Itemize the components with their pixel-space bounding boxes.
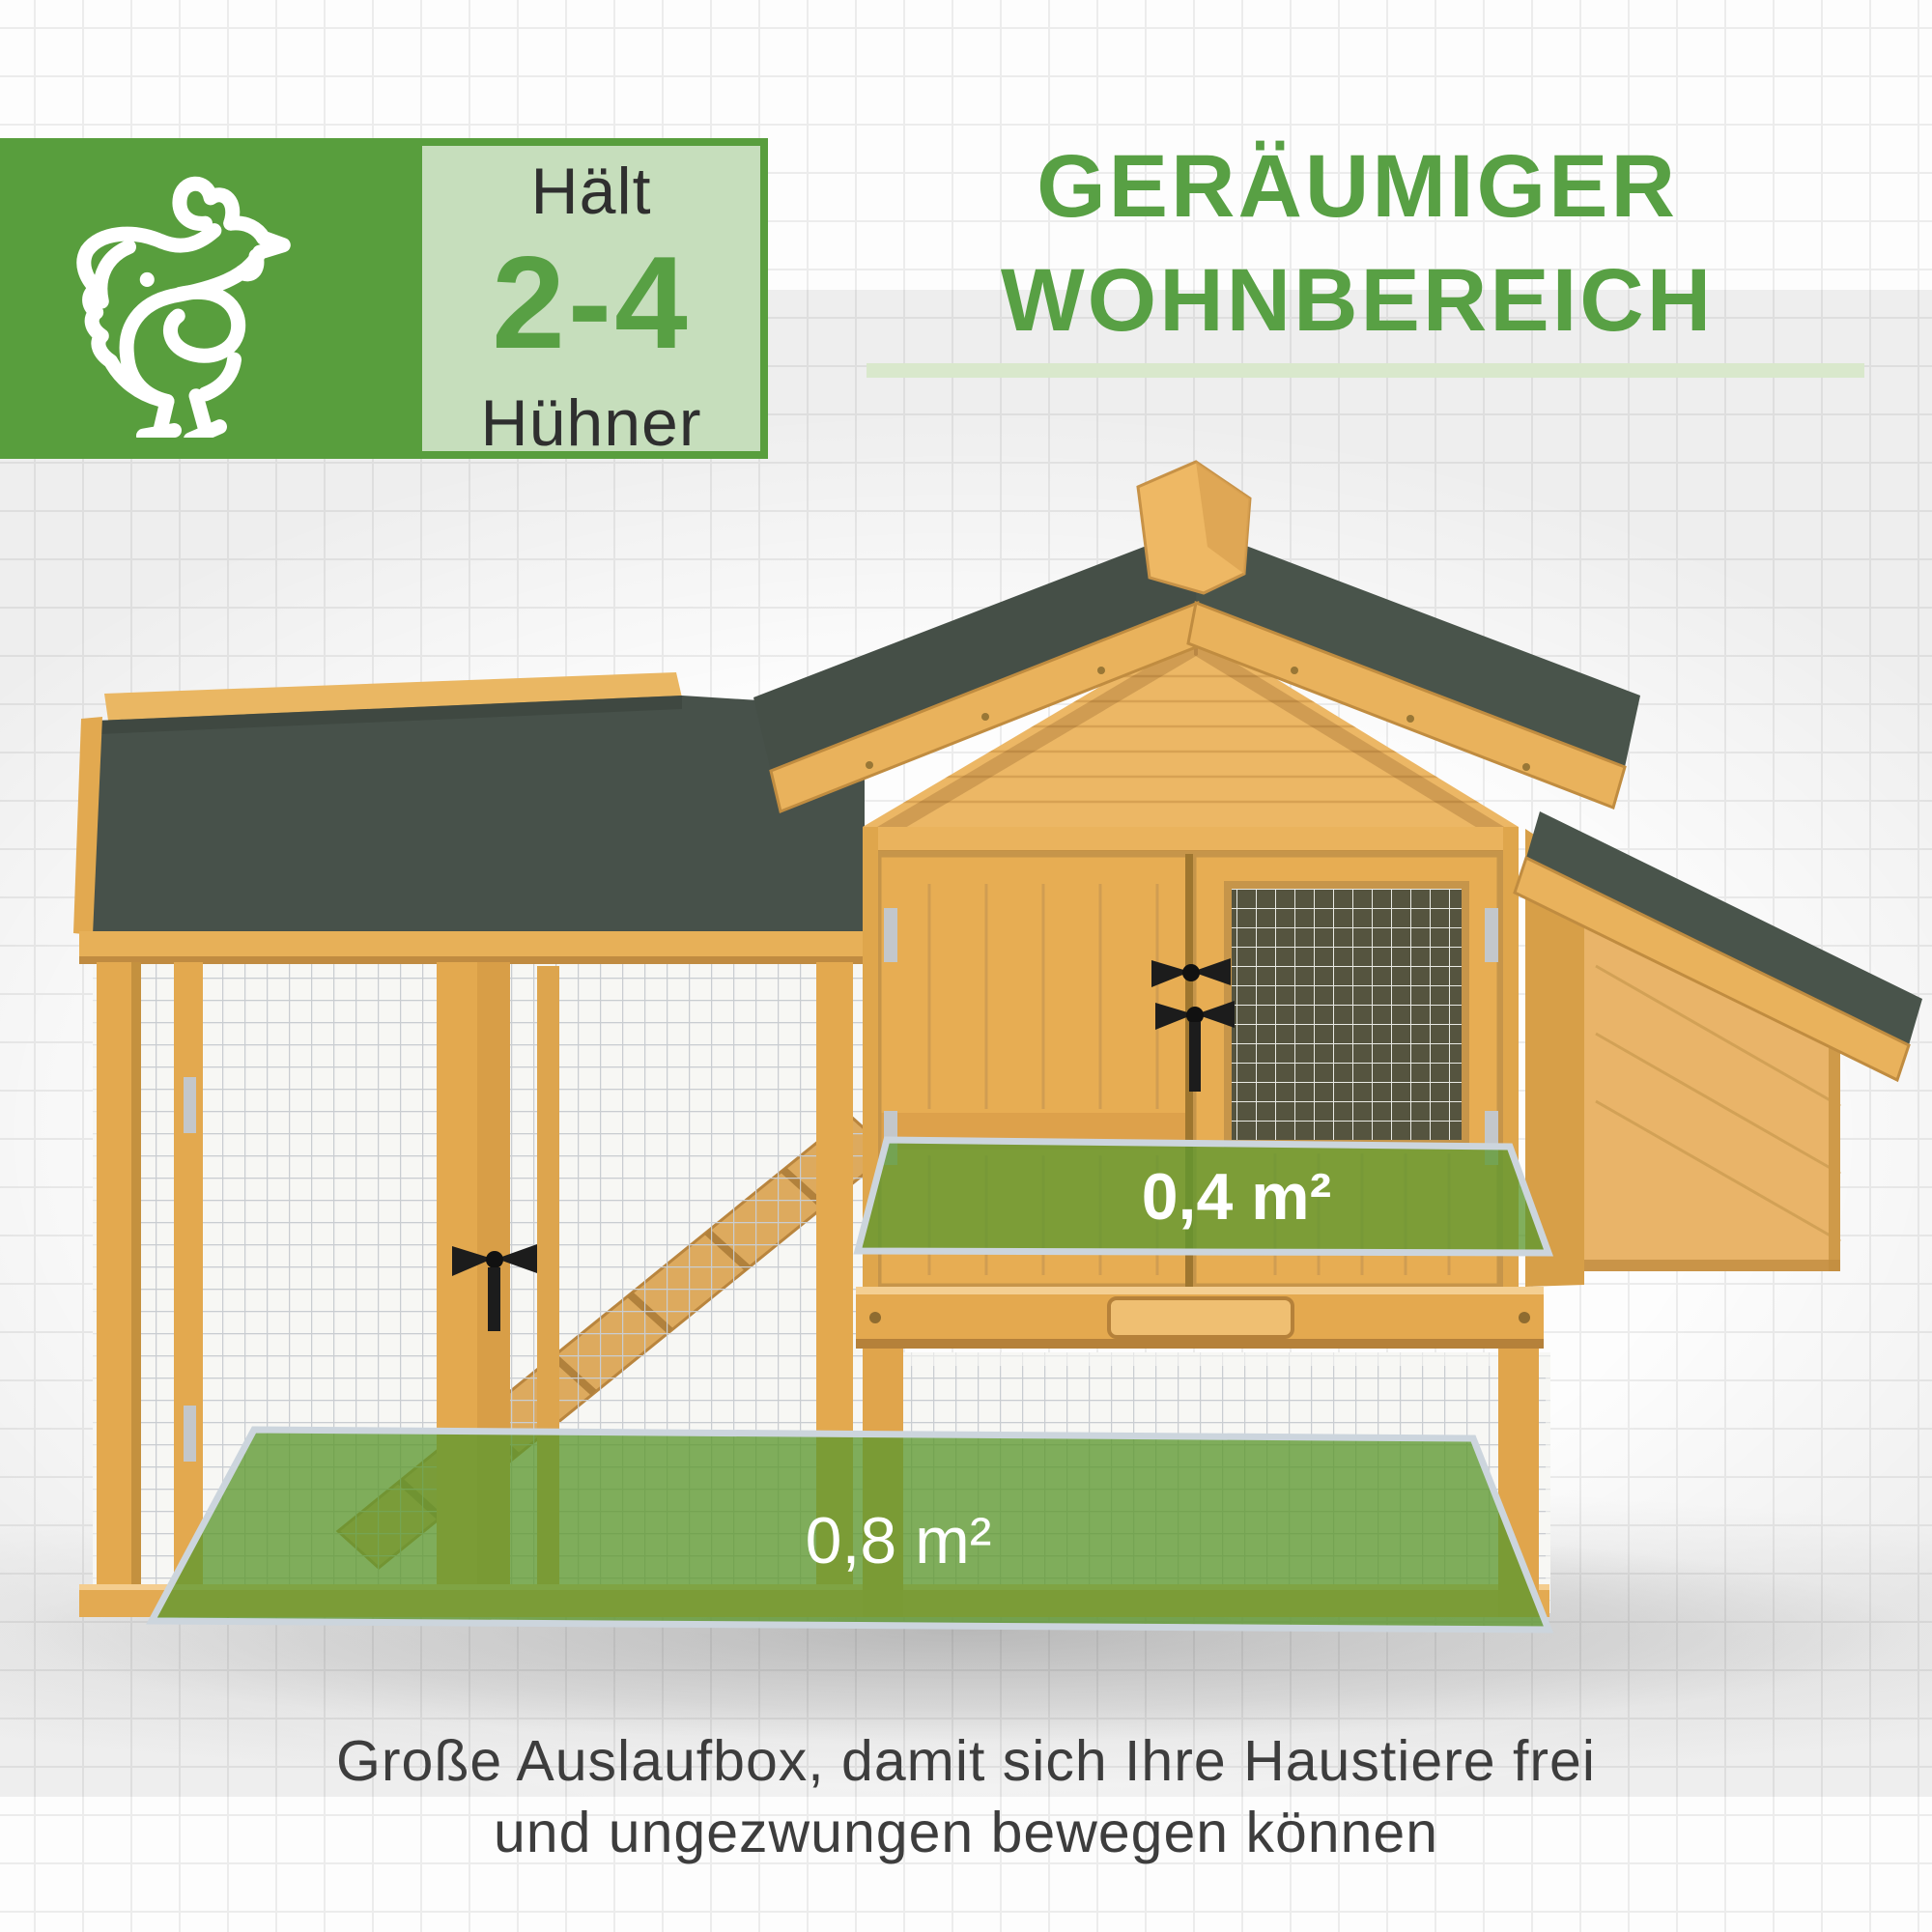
capacity-value: 2-4 (422, 227, 760, 378)
capacity-box: Hält 2-4 Hühner (0, 138, 768, 459)
caption-line2: und ungezwungen bewegen können (0, 1797, 1932, 1868)
area-label-upper: 0,4 m² (1142, 1160, 1332, 1234)
chicken-icon (37, 165, 327, 438)
page-title: GERÄUMIGER WOHNBEREICH (831, 129, 1884, 357)
area-overlay-upper: 0,4 m² (858, 1140, 1548, 1253)
tray (856, 1287, 1544, 1349)
area-overlay-lower: 0,8 m² (152, 1430, 1548, 1630)
tray-handle (1109, 1298, 1293, 1337)
caption-line1: Große Auslaufbox, damit sich Ihre Hausti… (0, 1725, 1932, 1797)
door-hinge (1485, 908, 1498, 962)
run-door-hinge (184, 1077, 196, 1133)
page: 0,4 m² 0,8 m² (0, 0, 1932, 1932)
door-hinge (884, 908, 897, 962)
run-roof-asphalt (85, 696, 865, 933)
page-title-line2: WOHNBEREICH (831, 243, 1884, 357)
run-door-stile-left (174, 962, 203, 1586)
capacity-label-bottom: Hühner (422, 385, 760, 461)
capacity-panel: Hält 2-4 Hühner (422, 146, 760, 451)
caption: Große Auslaufbox, damit sich Ihre Hausti… (0, 1725, 1932, 1868)
page-title-line1: GERÄUMIGER (831, 129, 1884, 243)
run-door-hinge (184, 1406, 196, 1462)
title-underline (867, 363, 1864, 378)
capacity-label-top: Hält (422, 154, 760, 229)
area-label-lower: 0,8 m² (806, 1504, 992, 1577)
